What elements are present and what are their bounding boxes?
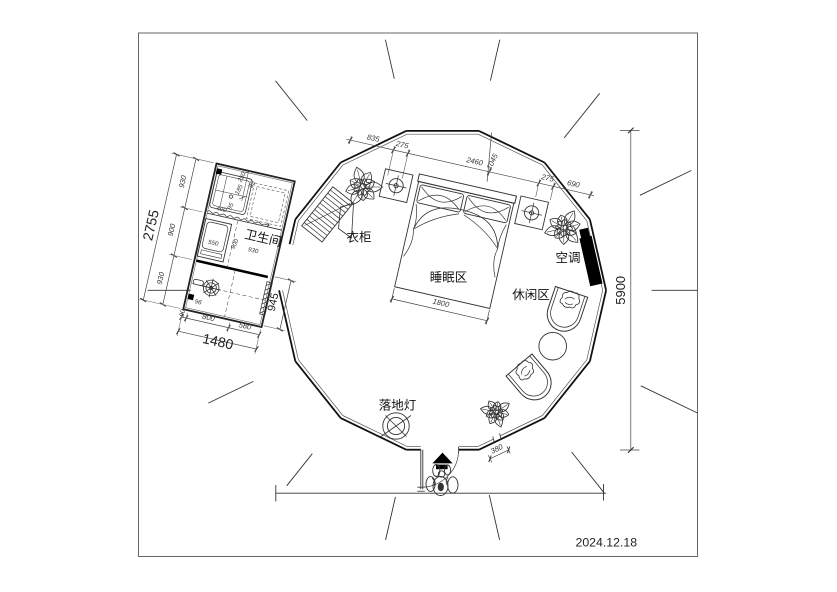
svg-text:空调: 空调 [555,251,580,265]
svg-text:休闲区: 休闲区 [512,288,550,302]
svg-text:落地灯: 落地灯 [379,399,417,413]
svg-text:睡眠区: 睡眠区 [430,271,468,285]
svg-text:5900: 5900 [613,276,628,305]
svg-text:衣柜: 衣柜 [346,230,371,245]
svg-text:2024.12.18: 2024.12.18 [576,536,638,550]
